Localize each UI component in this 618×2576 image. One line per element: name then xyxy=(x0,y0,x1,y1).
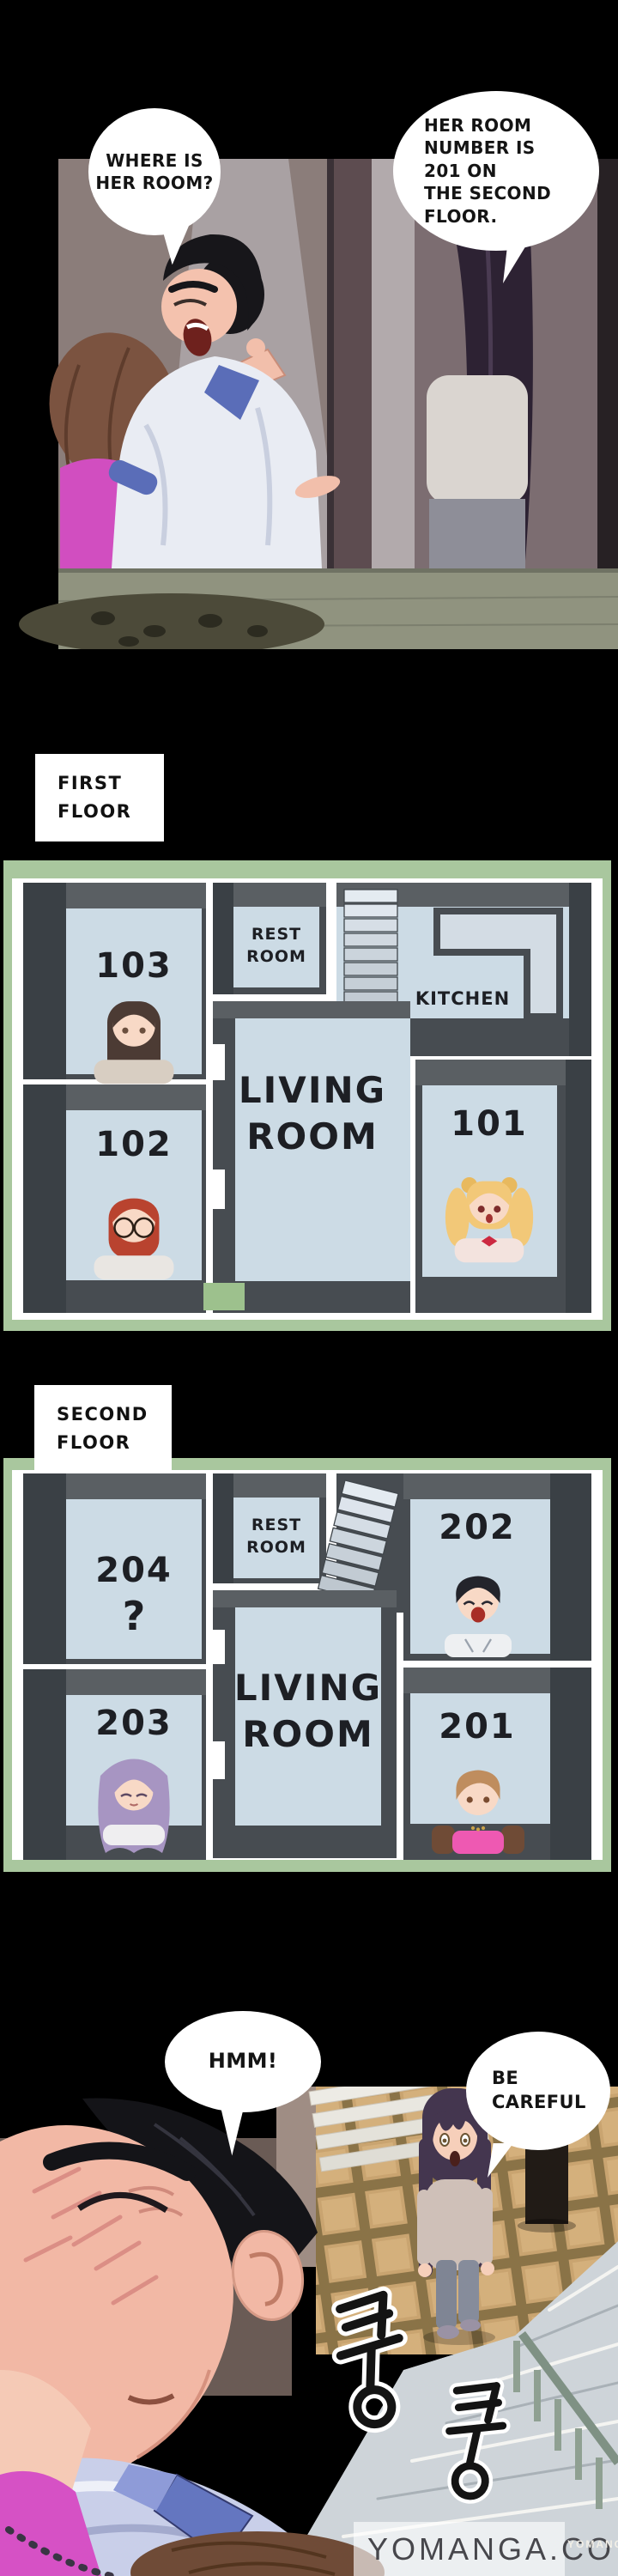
manga-page: WHERE IS HER ROOM? HER ROOM NUMBER IS 20… xyxy=(0,0,618,2576)
room-102: 102 xyxy=(23,1084,206,1313)
floor-edge xyxy=(58,568,618,573)
portrait-room-203 xyxy=(98,1759,169,1854)
living-room-text: ROOM xyxy=(242,1713,374,1755)
kitchen-text: KITCHEN xyxy=(415,988,510,1009)
bubble-text-line: HMM! xyxy=(209,2048,277,2075)
room-201-number: 201 xyxy=(439,1707,516,1747)
label-line: SECOND xyxy=(57,1400,172,1429)
bubble-text-line: BE xyxy=(492,2067,518,2091)
room-202-number: 202 xyxy=(439,1508,516,1547)
wall-edge-dark xyxy=(597,159,618,568)
bubble-text-line: HER ROOM? xyxy=(95,172,213,194)
watermark-small-text: YOMANGA xyxy=(567,2538,618,2550)
first-floor-label: FIRST FLOOR xyxy=(35,754,164,841)
room-101-number: 101 xyxy=(451,1104,528,1144)
woman-beige-top xyxy=(426,2179,484,2270)
doorway-shadow xyxy=(334,159,372,568)
bubble-text-line: WHERE IS xyxy=(106,149,203,172)
speech-bubble-hmm: HMM! xyxy=(165,2011,321,2112)
room-103-number: 103 xyxy=(95,946,173,986)
room-203: 203 xyxy=(23,1669,206,1860)
room-202: 202 xyxy=(403,1473,591,1661)
rest-room-text: ROOM xyxy=(246,947,306,966)
speech-bubble-careful: BE CAREFUL xyxy=(466,2032,610,2150)
label-line: FLOOR xyxy=(57,1429,172,1457)
room-103: 103 xyxy=(23,883,206,1084)
bubble-text-line: 201 ON xyxy=(424,160,497,182)
rest-room-f2: REST ROOM xyxy=(213,1473,326,1583)
rest-room-text: REST xyxy=(251,925,301,944)
woman-white-top xyxy=(427,375,528,504)
room-204-number: 204 xyxy=(95,1551,173,1590)
watermark-box: YOMANGA.CO xyxy=(354,2522,565,2576)
entrance-mat xyxy=(203,1283,245,1310)
label-line: FIRST xyxy=(58,769,164,798)
bubble-text-line: THE SECOND xyxy=(424,182,551,204)
room-204-question-mark: ? xyxy=(123,1593,146,1639)
living-room-f1: LIVING ROOM xyxy=(203,1001,410,1313)
second-floor-plan: 204 ? 203 REST xyxy=(3,1458,611,1872)
bottom-panel-art xyxy=(0,2087,618,2576)
living-room-f2: LIVING ROOM xyxy=(213,1590,397,1858)
woman-pants xyxy=(429,499,525,568)
portrait-room-101 xyxy=(445,1177,533,1262)
rest-room-text: REST xyxy=(251,1516,301,1534)
speech-bubble-room-number: HER ROOM NUMBER IS 201 ON THE SECOND FLO… xyxy=(393,91,599,251)
room-201: 201 xyxy=(403,1668,591,1860)
speech-bubble-where: WHERE IS HER ROOM? xyxy=(88,108,221,235)
second-floor-label: SECOND FLOOR xyxy=(34,1385,172,1473)
woman-jeans xyxy=(436,2260,457,2329)
living-room-text: LIVING xyxy=(239,1069,386,1111)
label-line: FLOOR xyxy=(58,798,164,826)
bubble-text-line: HER ROOM xyxy=(424,114,531,137)
bubble-text-line: NUMBER IS xyxy=(424,137,536,159)
rest-room-f1: REST ROOM xyxy=(213,883,326,994)
room-101: 101 xyxy=(415,1060,591,1313)
living-room-text: ROOM xyxy=(246,1115,379,1157)
woman-open-mouth xyxy=(450,2151,460,2166)
room-203-number: 203 xyxy=(95,1704,173,1743)
wall-right-light xyxy=(372,159,415,568)
room-102-number: 102 xyxy=(95,1125,173,1164)
bubble-text-line: CAREFUL xyxy=(492,2091,586,2115)
bubble-text-line: FLOOR. xyxy=(424,205,497,228)
room-204: 204 ? xyxy=(23,1473,206,1664)
door-frame xyxy=(327,159,334,568)
living-room-text: LIVING xyxy=(234,1667,382,1709)
first-floor-plan: 103 102 xyxy=(3,860,611,1331)
rest-room-text: ROOM xyxy=(246,1538,306,1557)
